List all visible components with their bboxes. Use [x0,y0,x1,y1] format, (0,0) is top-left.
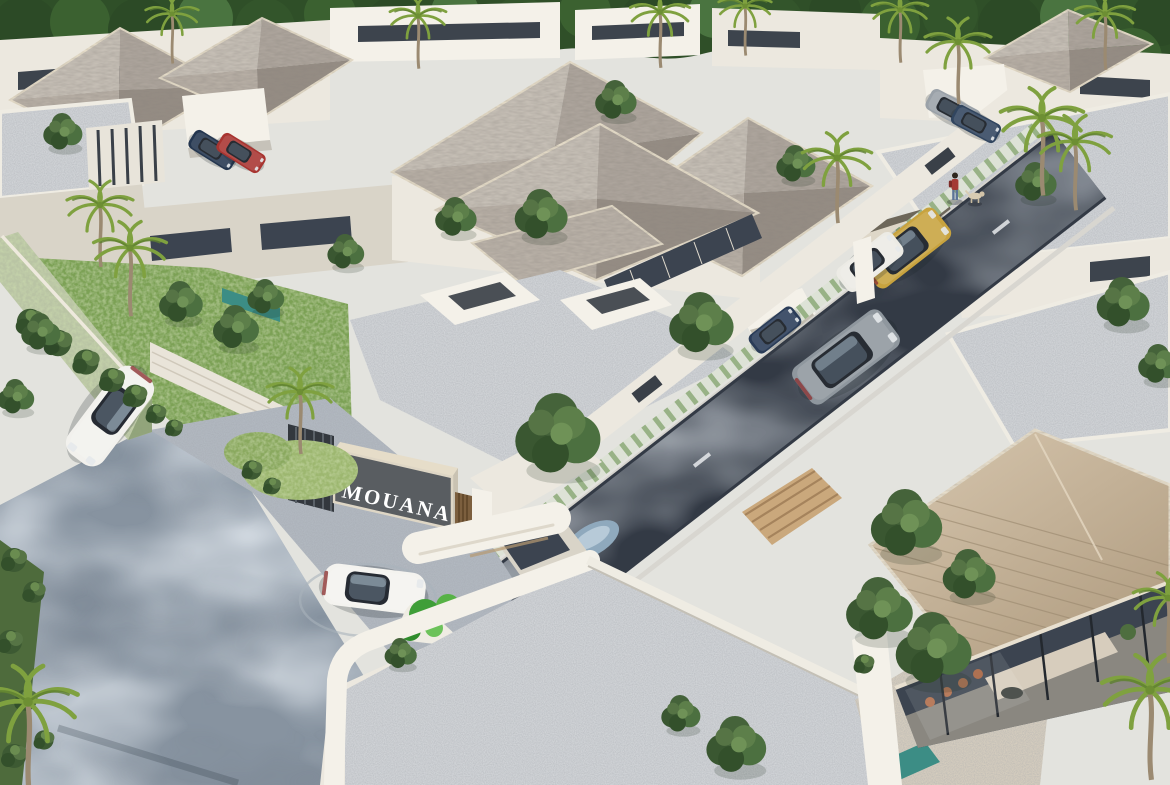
pedestrian-torso [952,179,959,190]
aerial-render-stage: MOUANA [0,0,1170,785]
mouana-aerial-render: MOUANA [0,0,1170,785]
pedestrian-head [952,173,958,179]
pedestrian-legs [952,189,954,200]
backpack [949,181,952,188]
